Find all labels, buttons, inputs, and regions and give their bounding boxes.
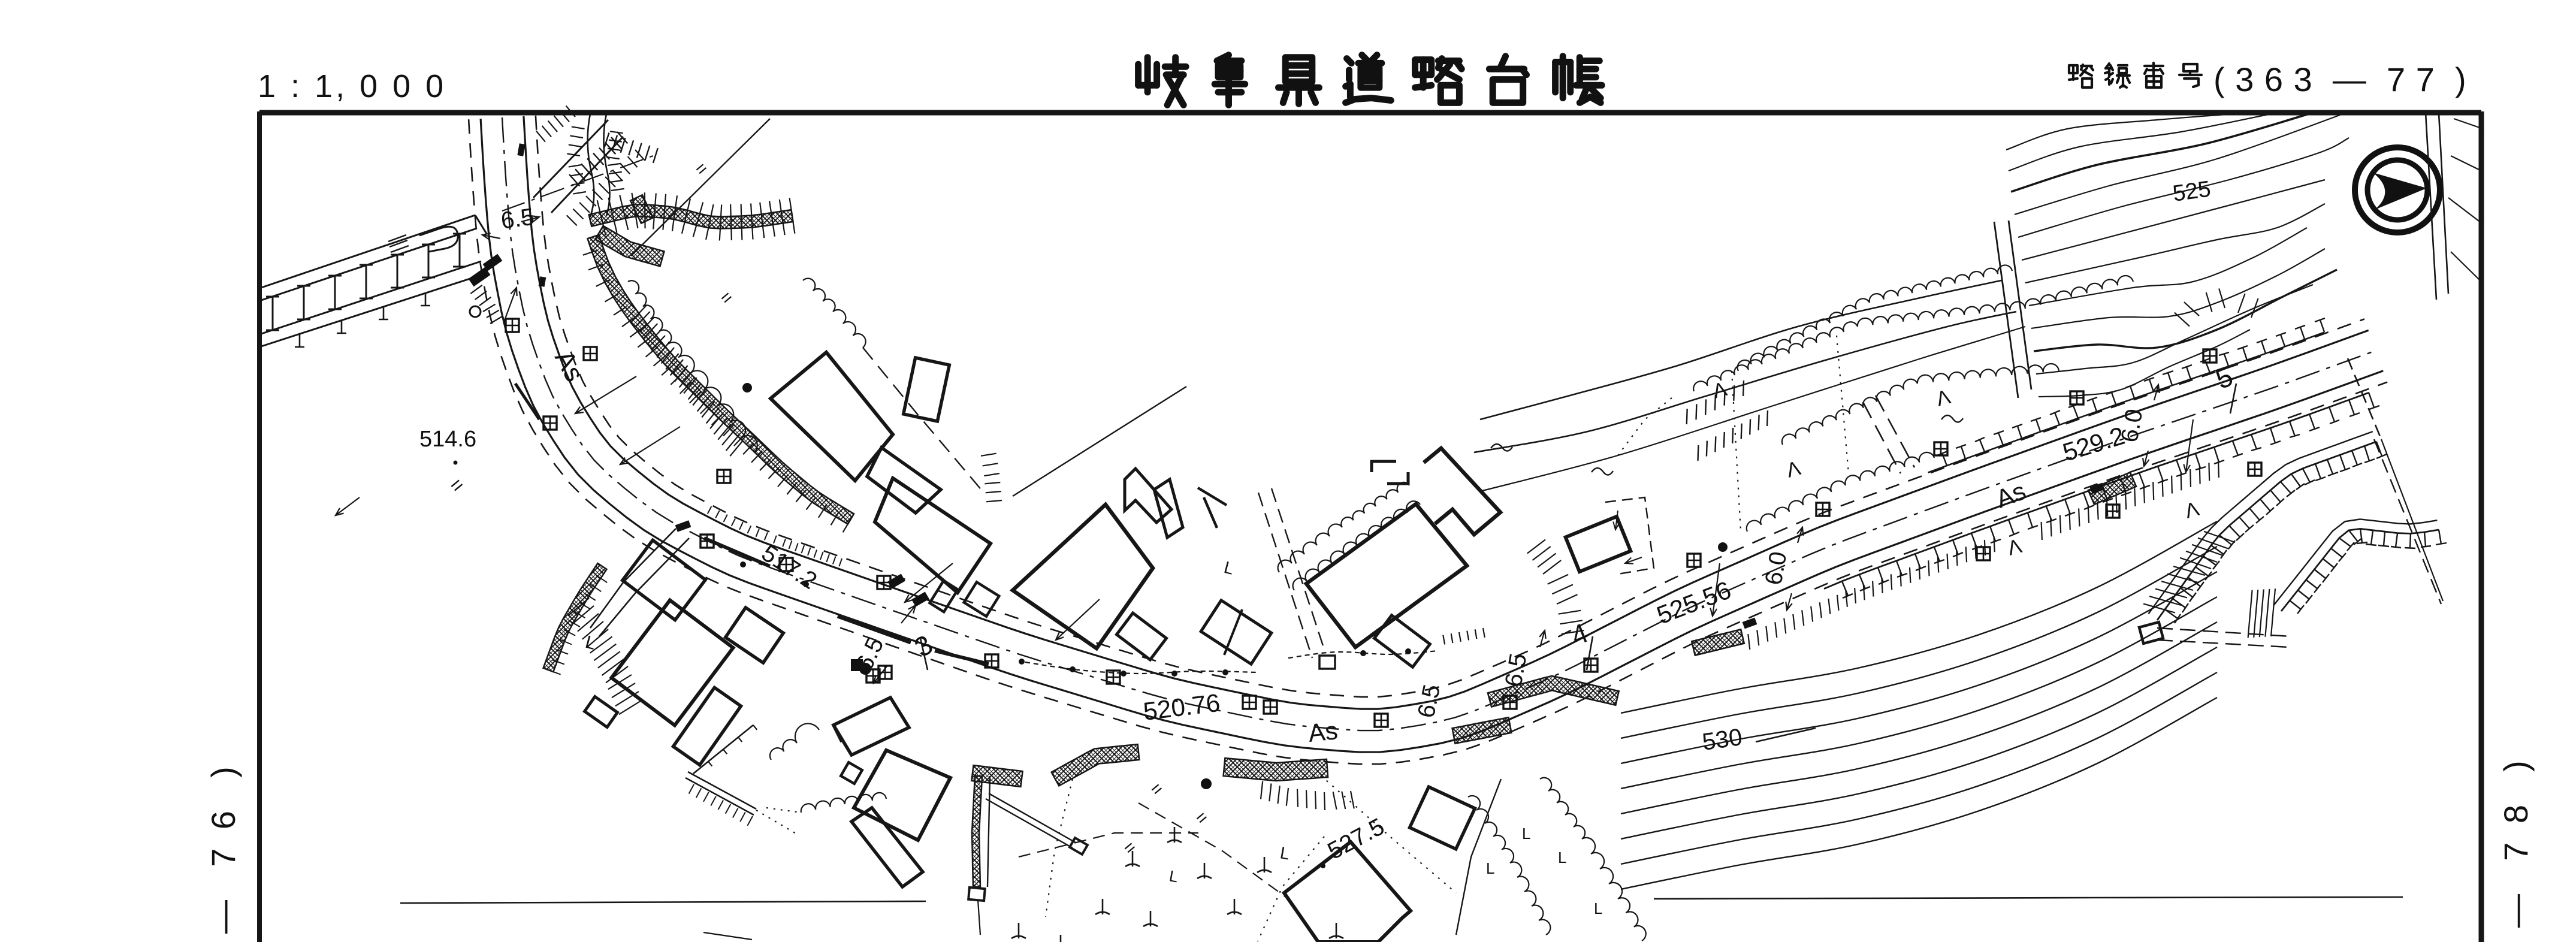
svg-text:1 : 1, 0 0 0: 1 : 1, 0 0 0 <box>258 68 446 104</box>
svg-text:514.6: 514.6 <box>419 427 476 452</box>
svg-text:L: L <box>1594 899 1602 917</box>
svg-text:L: L <box>1558 849 1566 866</box>
svg-text:— 7 6 ): — 7 6 ) <box>204 762 242 934</box>
svg-text:( 3 6 3 — 7 7 ): ( 3 6 3 — 7 7 ) <box>2213 61 2467 98</box>
svg-text:525: 525 <box>2171 176 2212 206</box>
svg-text:L: L <box>1522 825 1530 843</box>
svg-text:— 7 8 ): — 7 8 ) <box>2497 756 2535 928</box>
svg-text:L: L <box>1486 859 1494 877</box>
svg-text:As: As <box>1307 716 1339 747</box>
svg-text:530: 530 <box>1701 724 1744 756</box>
